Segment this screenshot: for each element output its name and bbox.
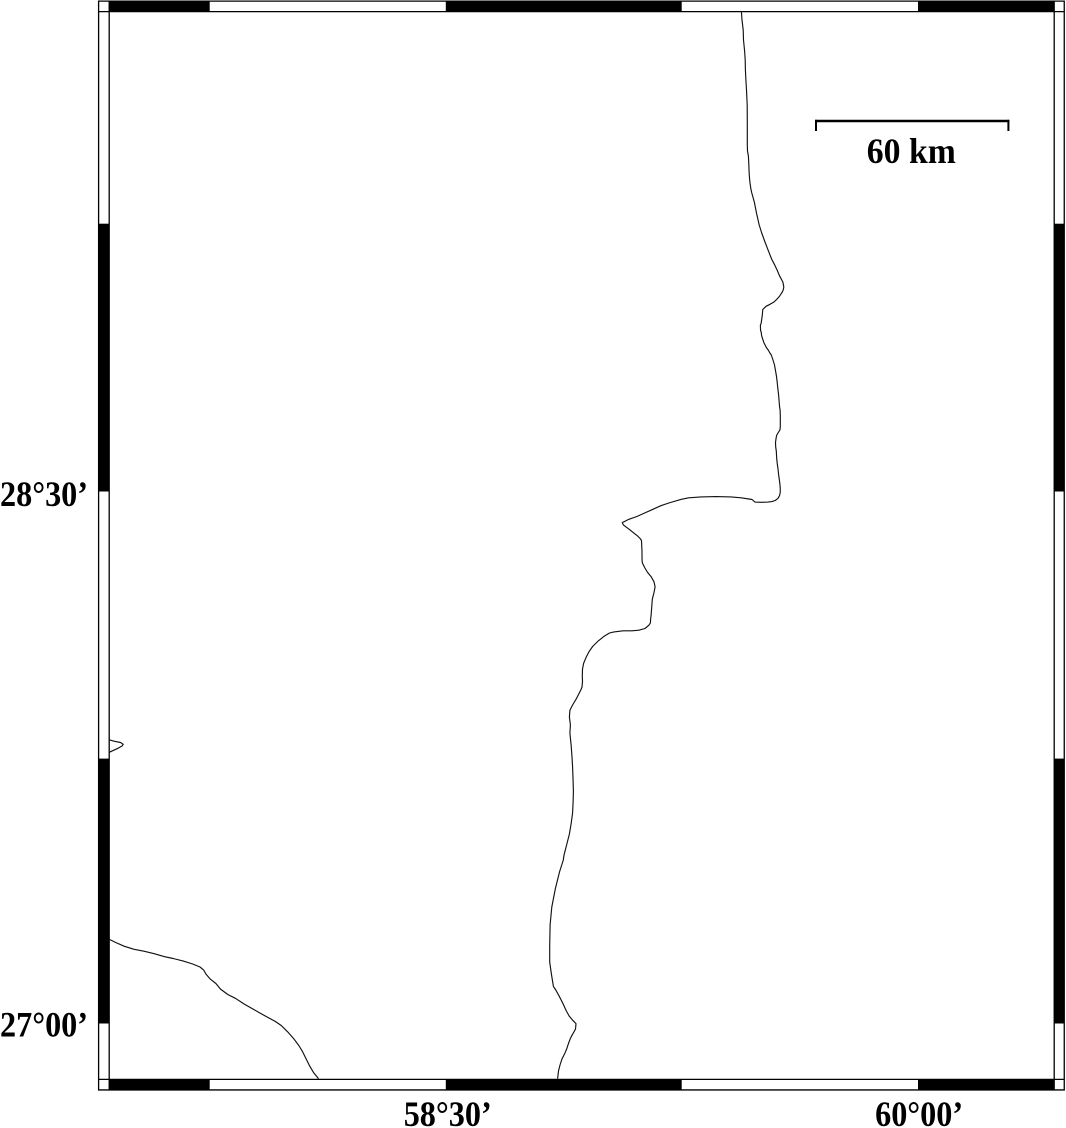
svg-text:60 km: 60 km <box>867 131 956 171</box>
svg-text:27°00’: 27°00’ <box>0 1005 88 1045</box>
svg-text:58°30’: 58°30’ <box>404 1094 492 1128</box>
svg-text:28°30’: 28°30’ <box>0 474 88 514</box>
svg-text:60°00’: 60°00’ <box>875 1094 963 1128</box>
